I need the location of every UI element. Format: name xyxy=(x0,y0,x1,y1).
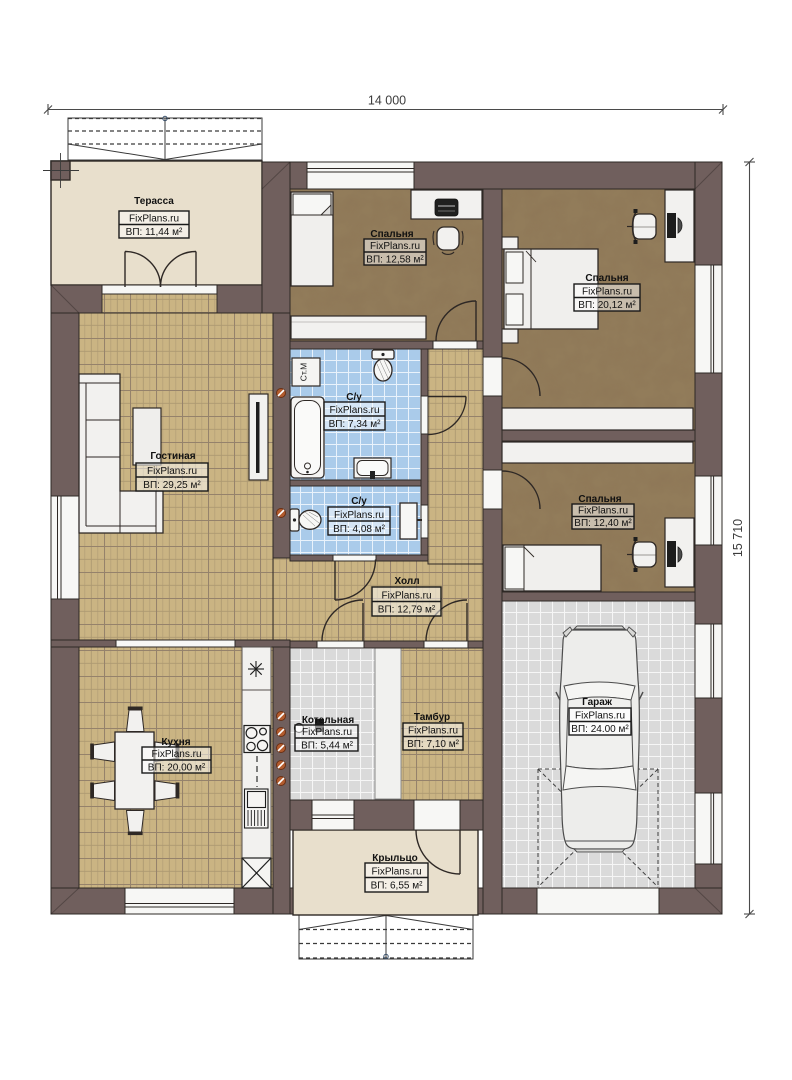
svg-text:ВП: 6,55 м²: ВП: 6,55 м² xyxy=(371,881,424,892)
svg-text:ВП: 12,58 м²: ВП: 12,58 м² xyxy=(366,255,424,266)
svg-text:ВП: 12,79 м²: ВП: 12,79 м² xyxy=(378,605,436,616)
svg-text:15 710: 15 710 xyxy=(731,519,745,557)
svg-text:ВП: 5,44 м²: ВП: 5,44 м² xyxy=(301,741,354,752)
svg-text:Гостиная: Гостиная xyxy=(150,451,195,462)
svg-text:Холл: Холл xyxy=(394,576,419,587)
svg-text:FixPlans.ru: FixPlans.ru xyxy=(302,727,352,738)
svg-text:Терасса: Терасса xyxy=(134,196,174,207)
svg-text:FixPlans.ru: FixPlans.ru xyxy=(578,506,628,517)
svg-text:ВП: 24.00 м²: ВП: 24.00 м² xyxy=(571,724,629,735)
svg-text:ВП: 4,08 м²: ВП: 4,08 м² xyxy=(333,524,386,535)
svg-text:FixPlans.ru: FixPlans.ru xyxy=(151,749,201,760)
svg-text:Гараж: Гараж xyxy=(582,697,613,708)
svg-text:FixPlans.ru: FixPlans.ru xyxy=(381,591,431,602)
svg-text:ВП: 20,00 м²: ВП: 20,00 м² xyxy=(148,763,206,774)
svg-text:FixPlans.ru: FixPlans.ru xyxy=(408,726,458,737)
svg-text:ВП: 20,12 м²: ВП: 20,12 м² xyxy=(578,300,636,311)
svg-text:Спальня: Спальня xyxy=(585,273,628,284)
svg-text:ВП: 7,10 м²: ВП: 7,10 м² xyxy=(407,739,460,750)
svg-text:FixPlans.ru: FixPlans.ru xyxy=(147,466,197,477)
svg-text:Тамбур: Тамбур xyxy=(414,711,450,723)
svg-text:14 000: 14 000 xyxy=(368,94,406,108)
svg-text:FixPlans.ru: FixPlans.ru xyxy=(575,711,625,722)
svg-text:ВП: 12,40 м²: ВП: 12,40 м² xyxy=(574,518,632,529)
svg-text:FixPlans.ru: FixPlans.ru xyxy=(329,405,379,416)
svg-text:Ст.М: Ст.М xyxy=(298,363,308,382)
svg-text:ВП: 7,34 м²: ВП: 7,34 м² xyxy=(329,419,382,430)
svg-text:FixPlans.ru: FixPlans.ru xyxy=(582,287,632,298)
svg-text:FixPlans.ru: FixPlans.ru xyxy=(370,241,420,252)
svg-text:ВП: 29,25 м²: ВП: 29,25 м² xyxy=(143,480,201,491)
svg-text:FixPlans.ru: FixPlans.ru xyxy=(334,510,384,521)
svg-text:С/у: С/у xyxy=(351,496,367,507)
svg-text:FixPlans.ru: FixPlans.ru xyxy=(129,214,179,225)
svg-text:ВП: 11,44 м²: ВП: 11,44 м² xyxy=(126,227,183,238)
svg-text:FixPlans.ru: FixPlans.ru xyxy=(371,867,421,878)
